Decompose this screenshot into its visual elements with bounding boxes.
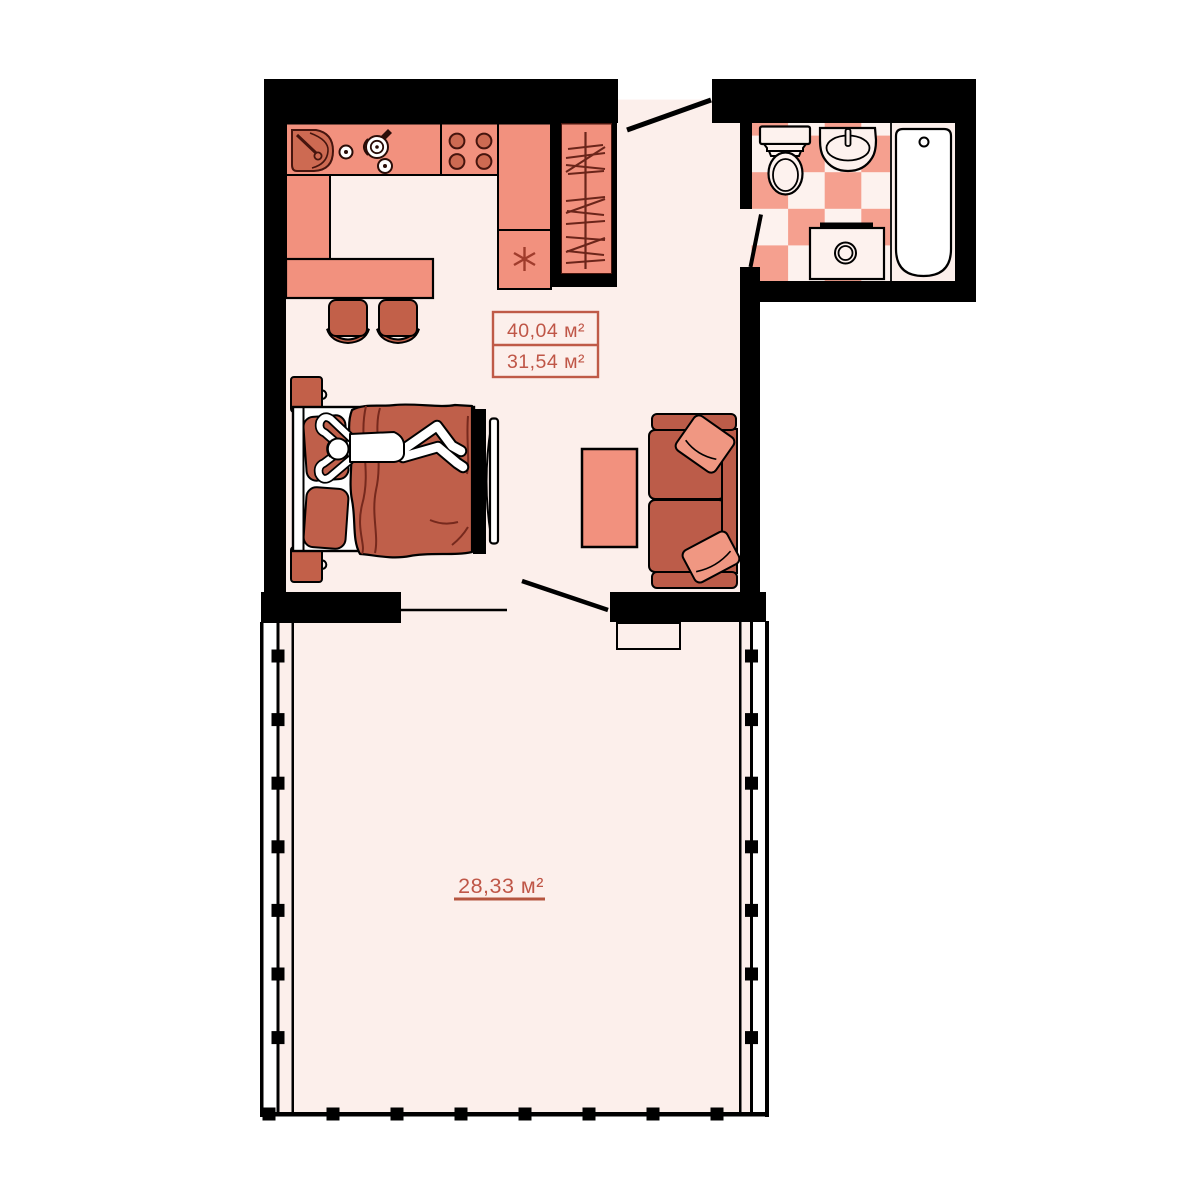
svg-text:31,54 м²: 31,54 м² [507,351,585,373]
svg-text:40,04 м²: 40,04 м² [507,320,585,342]
svg-text:28,33 м²: 28,33 м² [458,874,544,898]
